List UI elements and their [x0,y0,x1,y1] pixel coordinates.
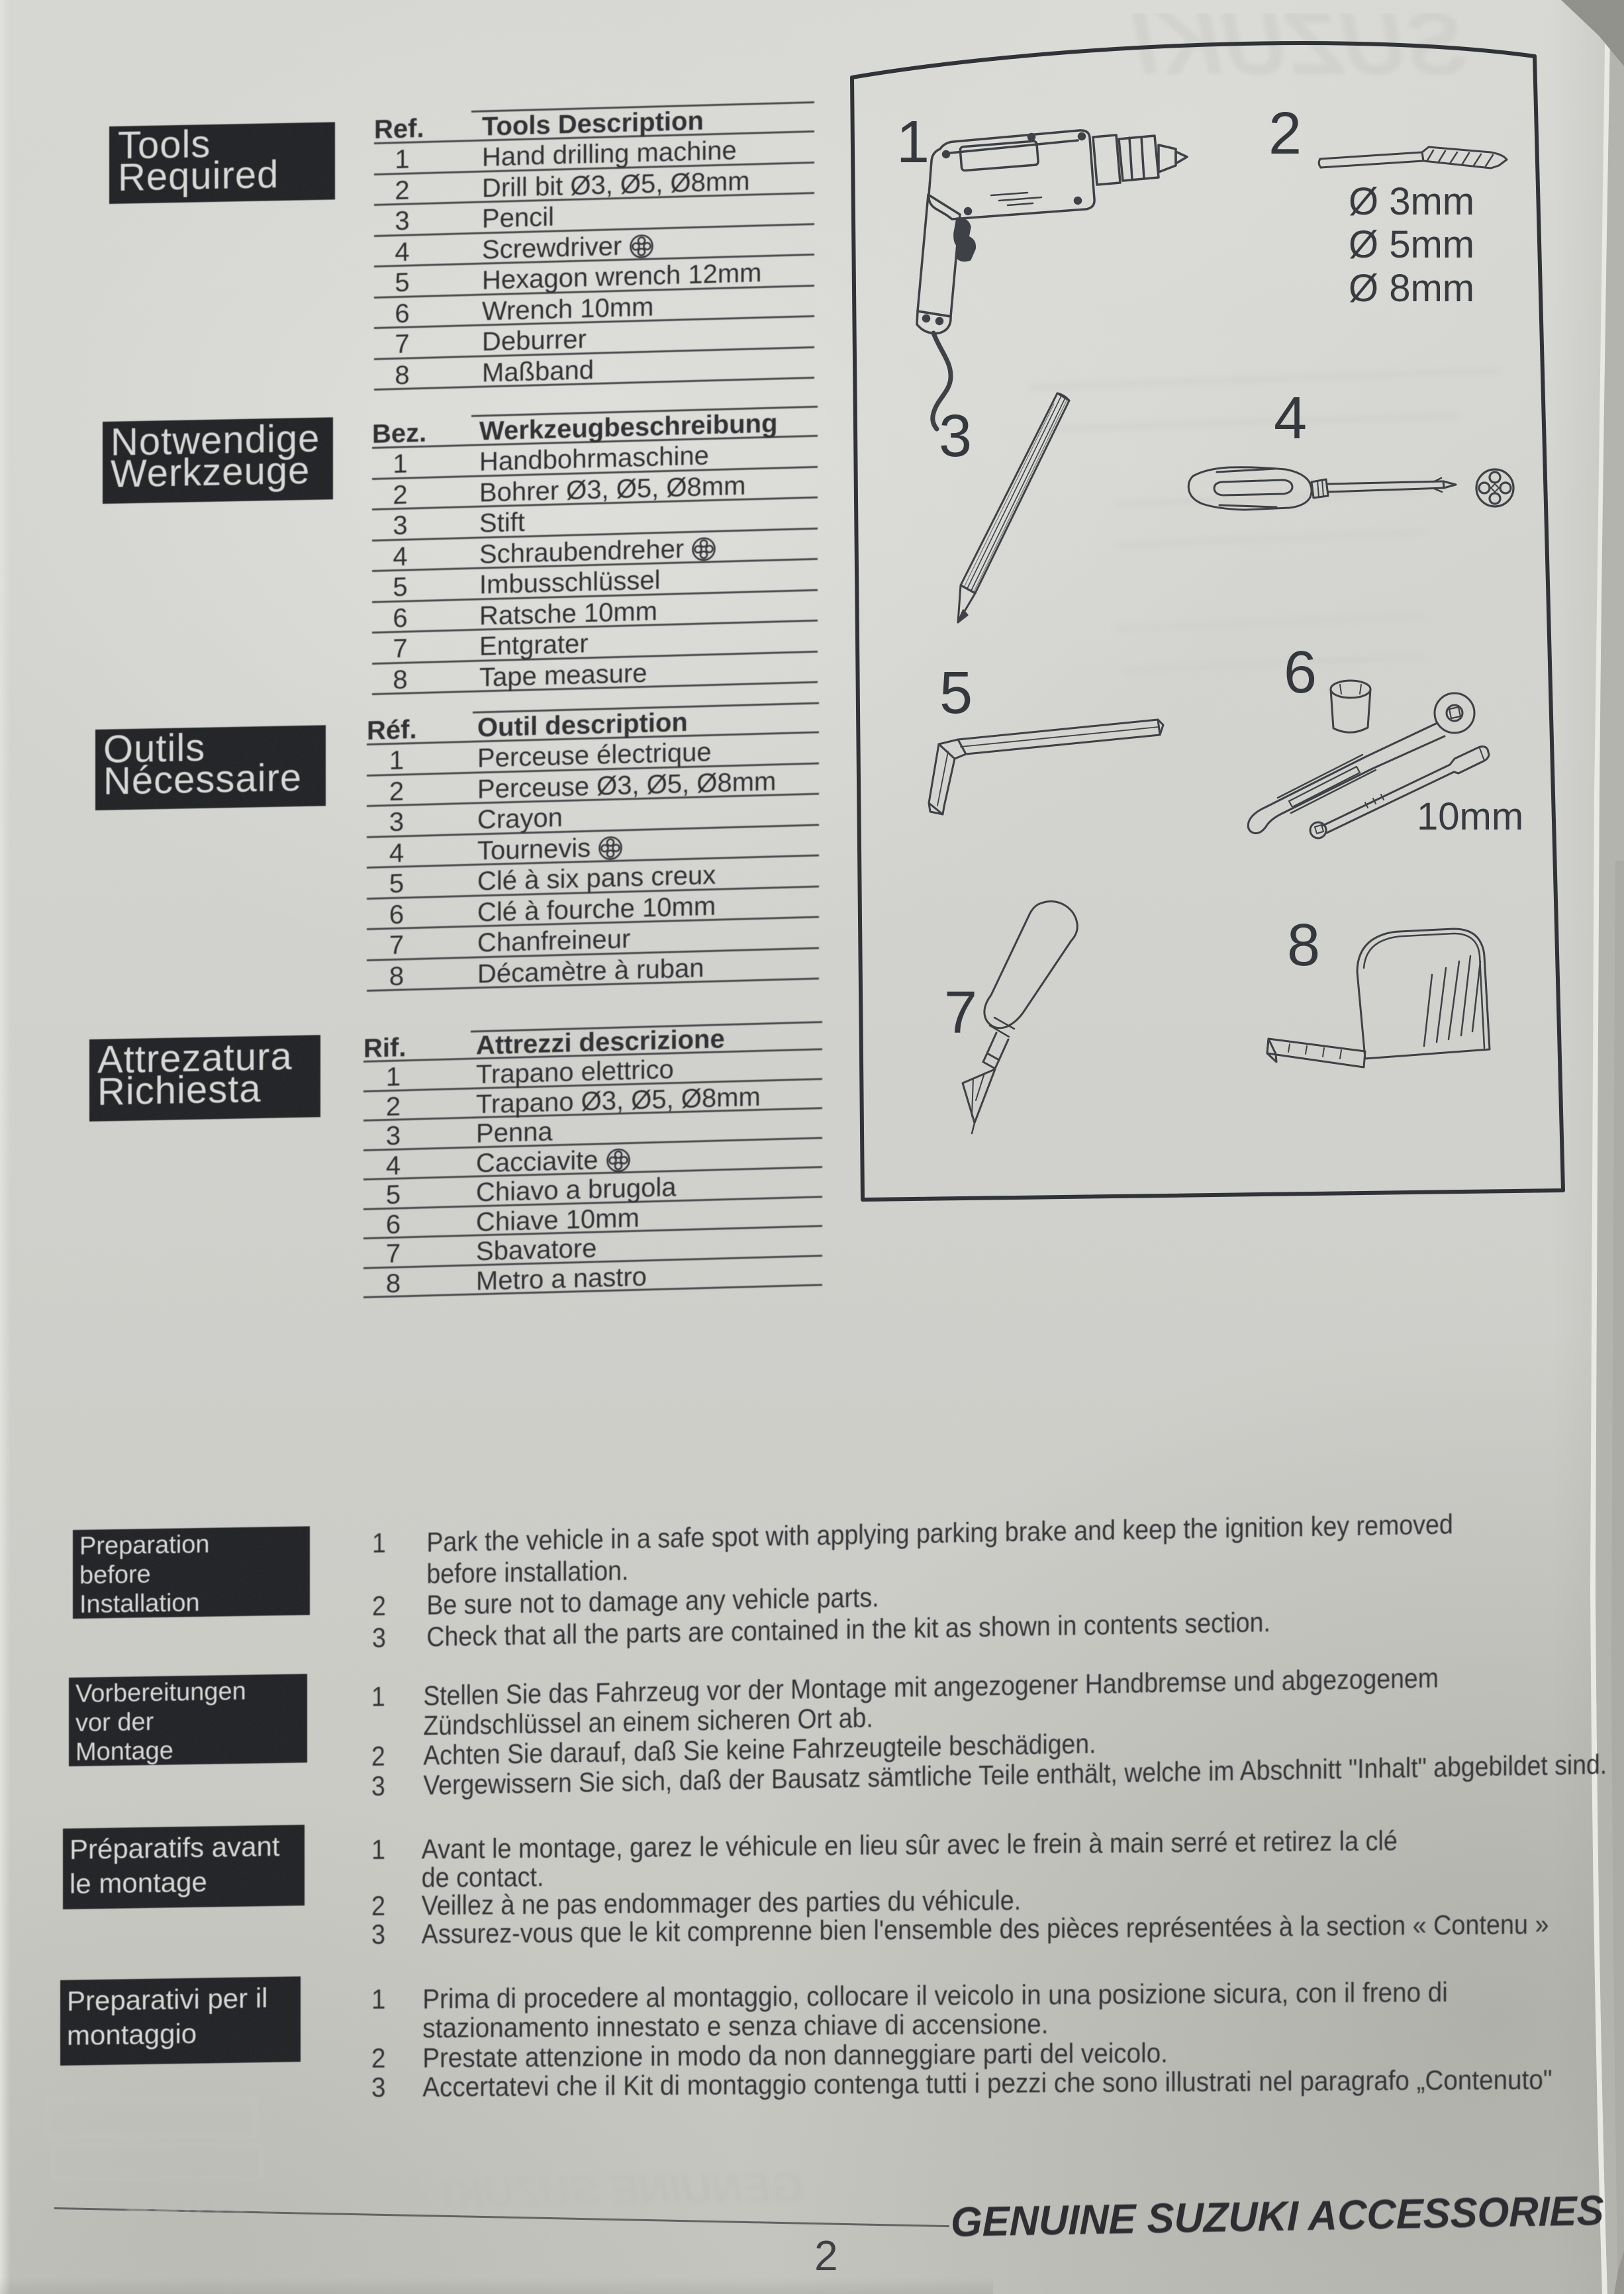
svg-text:2: 2 [1268,101,1302,167]
svg-text:5: 5 [939,660,973,726]
svg-text:Ø 3mm: Ø 3mm [1349,180,1474,223]
svg-text:Ø 8mm: Ø 8mm [1349,267,1474,310]
svg-text:8: 8 [1287,912,1320,979]
svg-text:Ø 5mm: Ø 5mm [1349,223,1474,266]
svg-text:1: 1 [896,109,930,175]
svg-text:SUZUKI: SUZUKI [1132,13,1466,93]
svg-text:10mm: 10mm [1417,795,1523,838]
svg-text:3: 3 [939,403,972,469]
svg-text:4: 4 [1274,385,1307,452]
svg-text:6: 6 [1284,640,1317,706]
svg-text:7: 7 [944,980,977,1046]
